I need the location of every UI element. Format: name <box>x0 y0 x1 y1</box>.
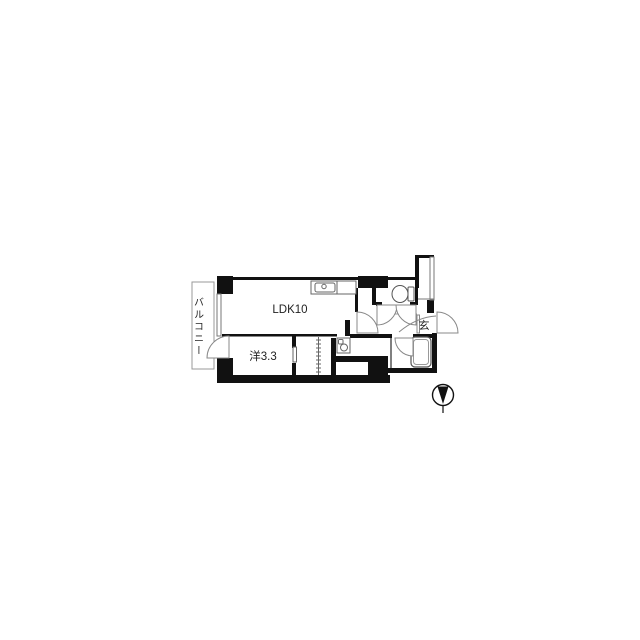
wall-shaft <box>368 356 388 376</box>
wall-bath-bottom <box>388 368 432 373</box>
wall-top-right-block <box>358 276 388 288</box>
front-door-arc <box>437 312 458 333</box>
wall-toilet-top <box>388 277 417 280</box>
wall-ldk-west-divider <box>222 334 337 337</box>
bathroom-door-arc <box>395 338 413 356</box>
ps-duct-double-line <box>430 257 434 300</box>
closet-accordion-door <box>316 337 321 375</box>
wall-ps-left <box>415 255 419 288</box>
toilet <box>392 286 414 303</box>
washer-drain-box <box>339 340 344 345</box>
wall-ldk-top <box>231 277 361 280</box>
wall-closet-stub-top <box>292 336 296 348</box>
washer-drain-circle <box>341 344 348 351</box>
floor-plan-page: バルコニー <box>0 0 640 640</box>
wall-pillar <box>345 320 350 336</box>
north-compass-icon <box>433 385 454 414</box>
wall-toilet-left <box>372 288 376 305</box>
kitchen-counter <box>311 281 356 294</box>
wall-bath-right <box>432 333 437 373</box>
western-room-label: 洋3.3 <box>249 349 277 363</box>
wall-closet-stub-bottom <box>292 363 296 375</box>
wall-top-left-block <box>217 276 233 294</box>
window-balcony-ldk <box>217 294 221 336</box>
bathtub <box>411 337 431 367</box>
toilet-door-arc <box>377 305 397 325</box>
ldk-hall-door-arc <box>357 312 378 333</box>
faucet-icon <box>322 284 326 288</box>
floor-plan: バルコニー <box>0 0 640 640</box>
entrance-label: 玄 <box>419 318 430 332</box>
washer-pan <box>337 338 350 353</box>
toilet-tank <box>408 287 414 301</box>
toilet-bowl <box>392 286 408 303</box>
balcony-door-arc <box>207 336 229 358</box>
wall-entry-right <box>427 300 434 313</box>
balcony-label: バルコニー <box>192 297 204 357</box>
wall-washroom-l <box>331 356 368 362</box>
sliding-door-leaf <box>293 347 297 362</box>
wall-bottom-main <box>217 375 390 383</box>
ldk-label: LDK10 <box>272 304 307 316</box>
wall-hall-bottom-left <box>350 334 392 338</box>
